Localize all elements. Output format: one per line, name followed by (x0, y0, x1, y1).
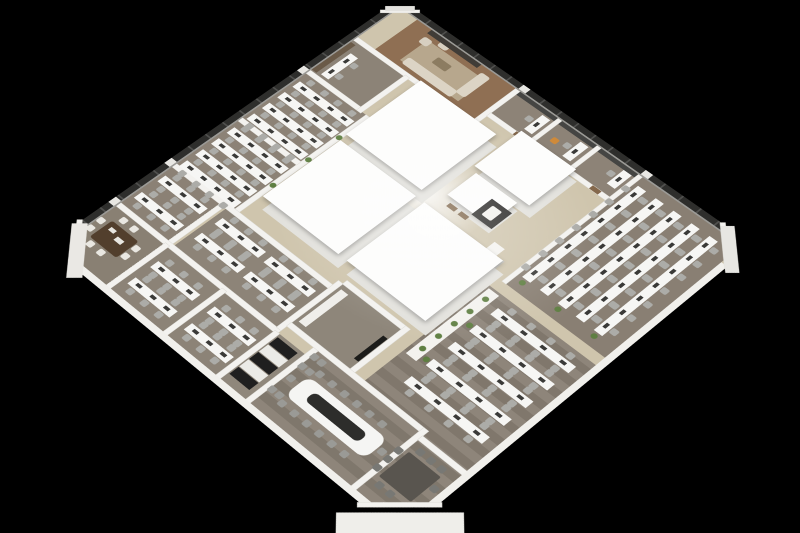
floorplan-3d-plan (46, 0, 753, 533)
office-floorplan-render (0, 0, 800, 533)
bevel-wall-bottom (358, 502, 442, 506)
balcony-apron-bottom (336, 512, 465, 533)
balcony-apron-top (385, 6, 415, 11)
